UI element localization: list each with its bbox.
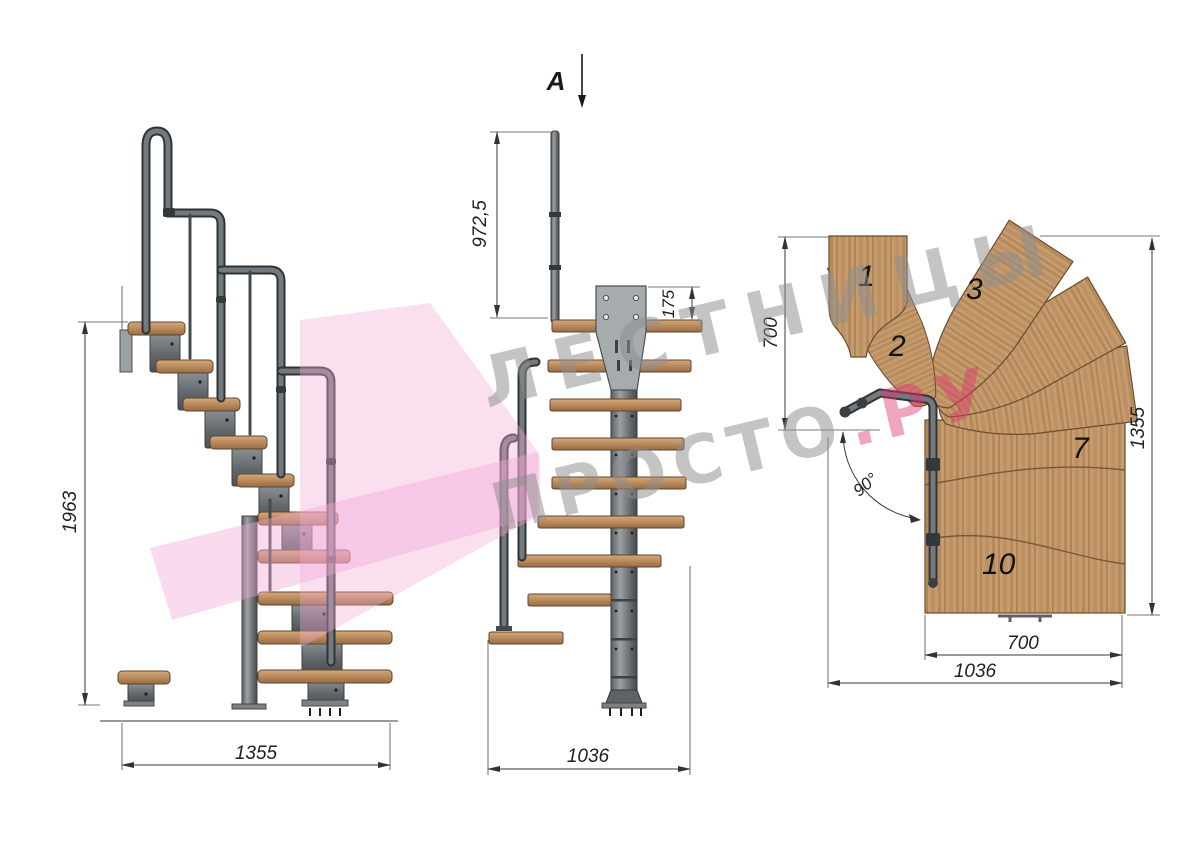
plan-floor-anchor [998, 616, 1052, 622]
tread-front [518, 555, 661, 567]
section-arrow-head [578, 95, 586, 108]
section-label: A [546, 66, 566, 96]
tube-sleeve [926, 458, 940, 471]
tread-side [156, 360, 213, 373]
bolt [334, 688, 337, 691]
bolt [615, 415, 618, 418]
bolt [615, 532, 618, 535]
side-height-dim: 1963 [60, 490, 81, 533]
section-marker: A [546, 54, 586, 108]
bolt [631, 532, 634, 535]
bolt [252, 456, 255, 459]
tread-side [237, 474, 294, 487]
bolt [615, 648, 618, 651]
bolt [225, 418, 228, 421]
step-module [128, 684, 154, 702]
step-module [302, 642, 342, 672]
tread-side [258, 670, 392, 683]
stack-base-plate [302, 700, 348, 706]
plan-right-dim: 1355 [1128, 406, 1149, 449]
column-joint [611, 638, 637, 641]
bolt [615, 610, 618, 613]
front-handrail-post [549, 131, 561, 323]
bolt [170, 342, 173, 345]
tread-side [128, 322, 185, 335]
tread-number-2: 2 [888, 330, 906, 363]
technical-drawing-canvas: 1963 1355 A [0, 0, 1200, 849]
tube-foot [496, 626, 512, 631]
entry-base-plate [124, 701, 154, 706]
tread-side [183, 398, 240, 411]
bolt [198, 380, 201, 383]
bolt [144, 692, 147, 695]
bolt [279, 494, 282, 497]
tread-side [210, 436, 267, 449]
bolt [631, 610, 634, 613]
plan-angle-dim: 90° [850, 469, 882, 500]
tread-side [118, 671, 170, 684]
plan-tread-width-dim: 700 [1007, 633, 1039, 654]
tube-cap [928, 578, 938, 588]
plan-flight-block [925, 420, 1125, 613]
bolt [631, 571, 634, 574]
anchor-bolts [310, 708, 340, 716]
front-width-dim: 1036 [567, 746, 610, 767]
tread-number-10: 10 [982, 548, 1016, 581]
front-post-dim: 972,5 [470, 200, 491, 248]
column-base-plate [232, 704, 266, 709]
tread-front [489, 632, 563, 644]
column-joint [611, 676, 637, 679]
tread-front [528, 594, 611, 606]
bolt [631, 648, 634, 651]
tread-number-7: 7 [1072, 432, 1090, 465]
drawing-svg: 1963 1355 A [0, 0, 1200, 849]
plan-total-width-dim: 1036 [954, 661, 997, 682]
tube-sleeve [926, 533, 940, 546]
bolt [631, 415, 634, 418]
wall-plate [120, 330, 132, 372]
bolt [615, 571, 618, 574]
side-width-dim: 1355 [235, 743, 278, 764]
column-joint [611, 599, 637, 602]
